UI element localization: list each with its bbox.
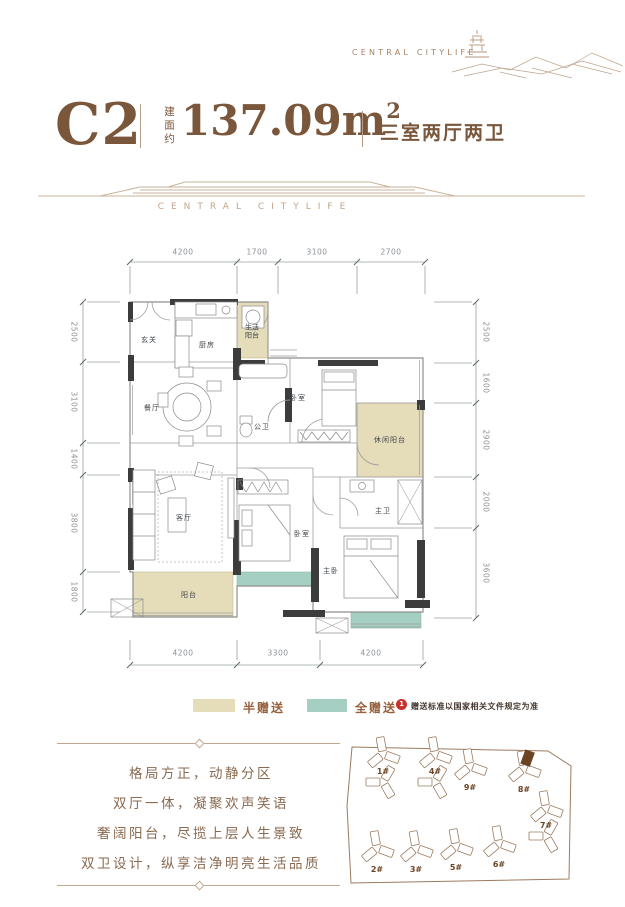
dim-bottom-3: 4200: [360, 649, 381, 658]
room-kitchen: 厨房: [199, 340, 215, 350]
siteplan-building: 5#: [440, 829, 473, 872]
dim-right-2: 1600: [482, 372, 491, 393]
siteplan-building: 6#: [483, 826, 516, 869]
dim-right-5: 3600: [482, 562, 491, 583]
dim-bottom-2: 3300: [267, 649, 288, 658]
feature-line-4: 双卫设计，纵享洁净明亮生活品质: [81, 852, 321, 872]
svg-text:3#: 3#: [410, 865, 423, 874]
dim-top-1: 4200: [172, 248, 193, 257]
room-master-bedroom: 主卧: [323, 566, 339, 576]
feature-line-1: 格局方正，动静分区: [129, 762, 273, 782]
dim-bottom-1: 4200: [172, 649, 193, 658]
legend-full-label: 全赠送: [355, 699, 397, 716]
dim-top-3: 3100: [306, 248, 327, 257]
dim-left-1: 2500: [70, 321, 79, 342]
dim-top-2: 1700: [246, 248, 267, 257]
svg-text:9#: 9#: [464, 783, 477, 792]
siteplan-buildings: 1#4#9#8#2#3#5#6#7#: [361, 737, 563, 874]
legend-note-text: 赠送标准以国家相关文件规定为准: [411, 701, 539, 712]
siteplan-building: 4#: [418, 737, 452, 799]
dim-right-4: 2000: [482, 491, 491, 512]
room-life-balcony: 生活阳台: [244, 324, 261, 341]
full-gift-strip-bedroom: [237, 572, 313, 586]
feature-line-3: 奢阔阳台，尽揽上层人生景致: [97, 822, 305, 842]
room-entry: 玄关: [141, 335, 157, 345]
legend-half-swatch: [193, 699, 235, 712]
dim-left-5: 1800: [70, 581, 79, 602]
dim-left-2: 3100: [70, 391, 79, 412]
dim-right-1: 2500: [482, 321, 491, 342]
room-leisure-balcony: 休闲阳台: [374, 435, 406, 445]
siteplan-building: 8#: [508, 749, 541, 794]
siteplan-building: 1#: [366, 737, 400, 799]
room-balcony: 阳台: [181, 590, 197, 600]
legend-full-swatch: [307, 699, 347, 712]
room-living: 客厅: [176, 513, 192, 523]
siteplan-building: 3#: [400, 831, 433, 874]
svg-text:2#: 2#: [371, 865, 384, 874]
room-bedroom2: 卧室: [290, 393, 306, 403]
dim-right-3: 2900: [482, 429, 491, 450]
siteplan-building: 2#: [361, 831, 394, 874]
svg-text:5#: 5#: [450, 863, 463, 872]
dim-left-4: 3800: [70, 512, 79, 533]
room-master-bath: 主卫: [375, 506, 391, 516]
legend-half-label: 半赠送: [243, 699, 285, 716]
svg-text:7#: 7#: [540, 821, 553, 830]
svg-text:1#: 1#: [377, 767, 390, 776]
svg-text:6#: 6#: [493, 860, 506, 869]
room-guest-bath: 公卫: [254, 422, 270, 432]
dim-left-3: 1400: [70, 448, 79, 469]
siteplan-building: 9#: [454, 749, 487, 792]
feature-line-2: 双厅一体，凝聚欢声笑语: [113, 792, 289, 812]
floorplan-drawing: 1#4#9#8#2#3#5#6#7#: [0, 0, 625, 907]
svg-text:8#: 8#: [518, 785, 531, 794]
legend-note-badge: 1: [396, 699, 407, 710]
dim-top-4: 2700: [380, 248, 401, 257]
siteplan-building: 7#: [529, 791, 563, 853]
room-bedroom3: 卧室: [294, 529, 310, 539]
room-dining: 餐厅: [144, 403, 160, 413]
full-gift-strip-master: [351, 612, 421, 628]
brochure-page: CENTRAL CITYLIFE C2 建面约 137.09m2 三室两厅两卫 …: [0, 0, 625, 907]
svg-text:4#: 4#: [429, 767, 442, 776]
